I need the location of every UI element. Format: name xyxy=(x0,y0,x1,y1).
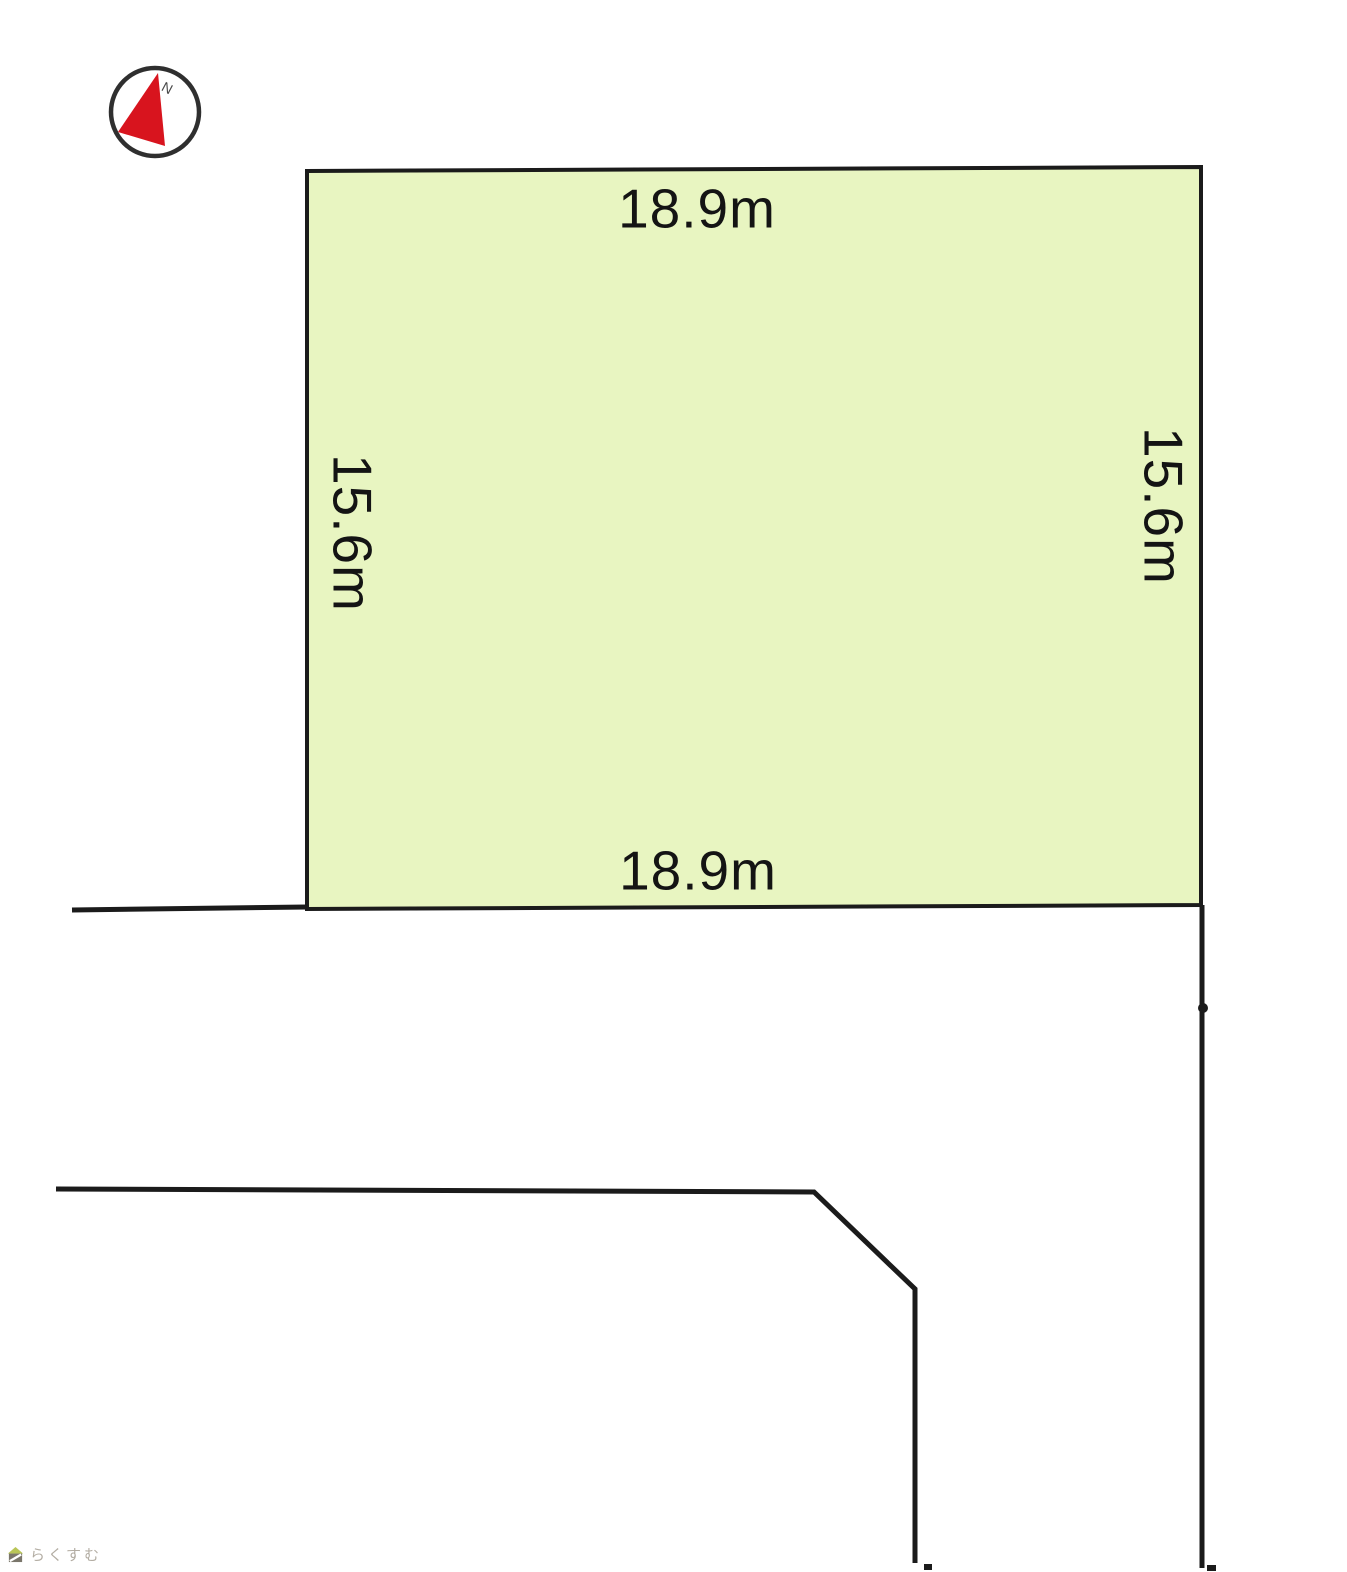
line-node-dot xyxy=(1198,1003,1208,1013)
line-end-dash-lower xyxy=(924,1564,932,1570)
line-end-dash-right xyxy=(1207,1565,1216,1571)
road-line-lower xyxy=(56,1189,915,1563)
road-line-upper xyxy=(72,907,307,910)
house-logo-icon xyxy=(7,1546,24,1563)
land-plot xyxy=(307,167,1201,909)
watermark-brand: らくすむ xyxy=(30,1544,102,1565)
dimension-left: 15.6m xyxy=(325,454,380,612)
compass-icon: N xyxy=(111,68,199,156)
watermark: らくすむ xyxy=(7,1544,102,1565)
dimension-bottom: 18.9m xyxy=(619,844,777,899)
dimension-top: 18.9m xyxy=(618,182,776,237)
land-plot-diagram: N 18.9m 18.9m 15.6m 15.6m らくすむ xyxy=(0,0,1347,1572)
dimension-right: 15.6m xyxy=(1136,427,1191,585)
